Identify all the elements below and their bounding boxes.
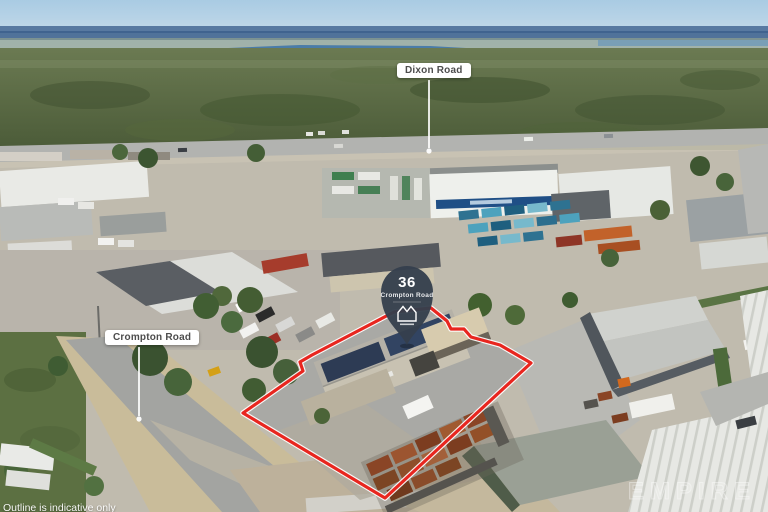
aerial-property-photo: Dixon Road Crompton Road 36 Crompton Roa… xyxy=(0,0,768,512)
pin-street-name: Crompton Road xyxy=(380,292,433,299)
crompton-road-label: Crompton Road xyxy=(105,330,199,345)
pin-street-number: 36 xyxy=(398,274,416,291)
aerial-photo-scene xyxy=(0,0,768,512)
outline-disclaimer: Outline is indicative only xyxy=(3,502,116,512)
agency-watermark: EMPIRE xyxy=(628,478,756,506)
dixon-road-label: Dixon Road xyxy=(397,63,471,78)
